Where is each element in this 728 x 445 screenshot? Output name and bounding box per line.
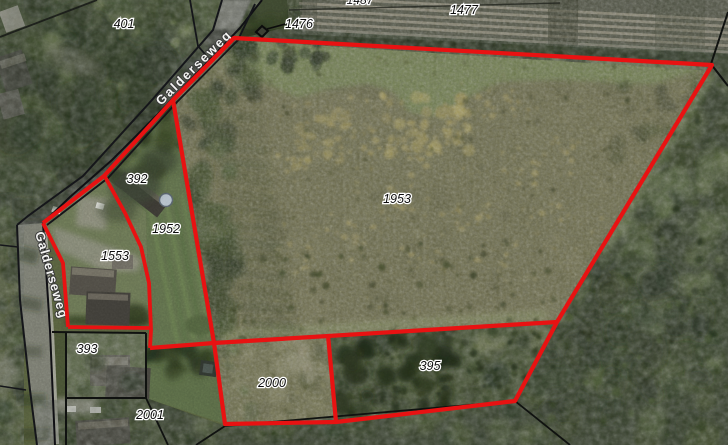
svg-text:395: 395 (420, 359, 441, 373)
svg-text:1487: 1487 (347, 0, 375, 7)
svg-text:1477: 1477 (450, 3, 479, 17)
svg-text:2000: 2000 (257, 376, 286, 390)
svg-text:392: 392 (127, 172, 148, 186)
svg-text:393: 393 (77, 342, 98, 356)
svg-text:1476: 1476 (285, 17, 313, 31)
svg-text:2001: 2001 (135, 408, 164, 422)
svg-text:1952: 1952 (152, 222, 180, 236)
svg-text:1953: 1953 (383, 192, 411, 206)
svg-text:1553: 1553 (101, 249, 129, 263)
svg-text:401: 401 (114, 17, 135, 31)
